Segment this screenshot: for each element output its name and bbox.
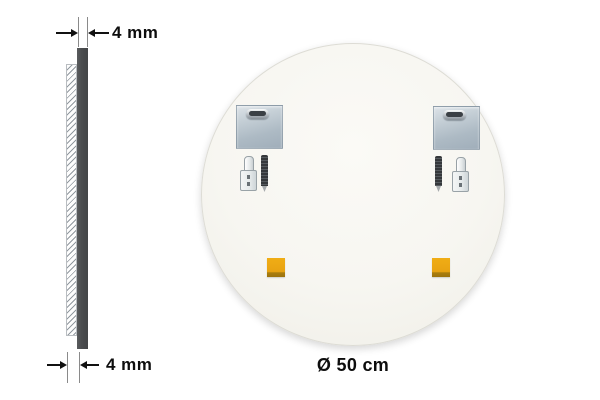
keyhole-slot-opening [446, 112, 463, 117]
keyhole-slot-opening [249, 111, 266, 116]
wall-plug-icon [456, 157, 466, 172]
wall-plug-detail [459, 176, 462, 180]
screw-icon [435, 156, 442, 186]
mirror-edge-bar [77, 48, 88, 349]
extension-line [67, 352, 68, 383]
thickness-label-bottom: 4 mm [106, 355, 152, 375]
arrow-right-icon [60, 361, 67, 369]
product-diagram: 4 mm 4 mm Ø 50 cm [0, 0, 600, 400]
mirror-back [201, 43, 505, 346]
wall-plug-icon [240, 170, 257, 191]
cross-section-hatch [66, 64, 77, 336]
wall-plug-detail [247, 182, 250, 186]
wall-plug-icon [452, 171, 469, 192]
arrow-right-icon [71, 29, 78, 37]
dimension-line [93, 32, 109, 34]
dimension-line [85, 364, 99, 366]
adhesive-pad-icon [267, 258, 285, 277]
adhesive-pad-icon [432, 258, 450, 277]
thickness-label-top: 4 mm [112, 23, 158, 43]
screw-icon [261, 155, 268, 186]
wall-plug-detail [247, 175, 250, 179]
wall-plug-detail [459, 183, 462, 187]
wall-plug-icon [244, 156, 254, 171]
extension-line [78, 17, 79, 47]
diameter-label: Ø 50 cm [201, 355, 505, 376]
